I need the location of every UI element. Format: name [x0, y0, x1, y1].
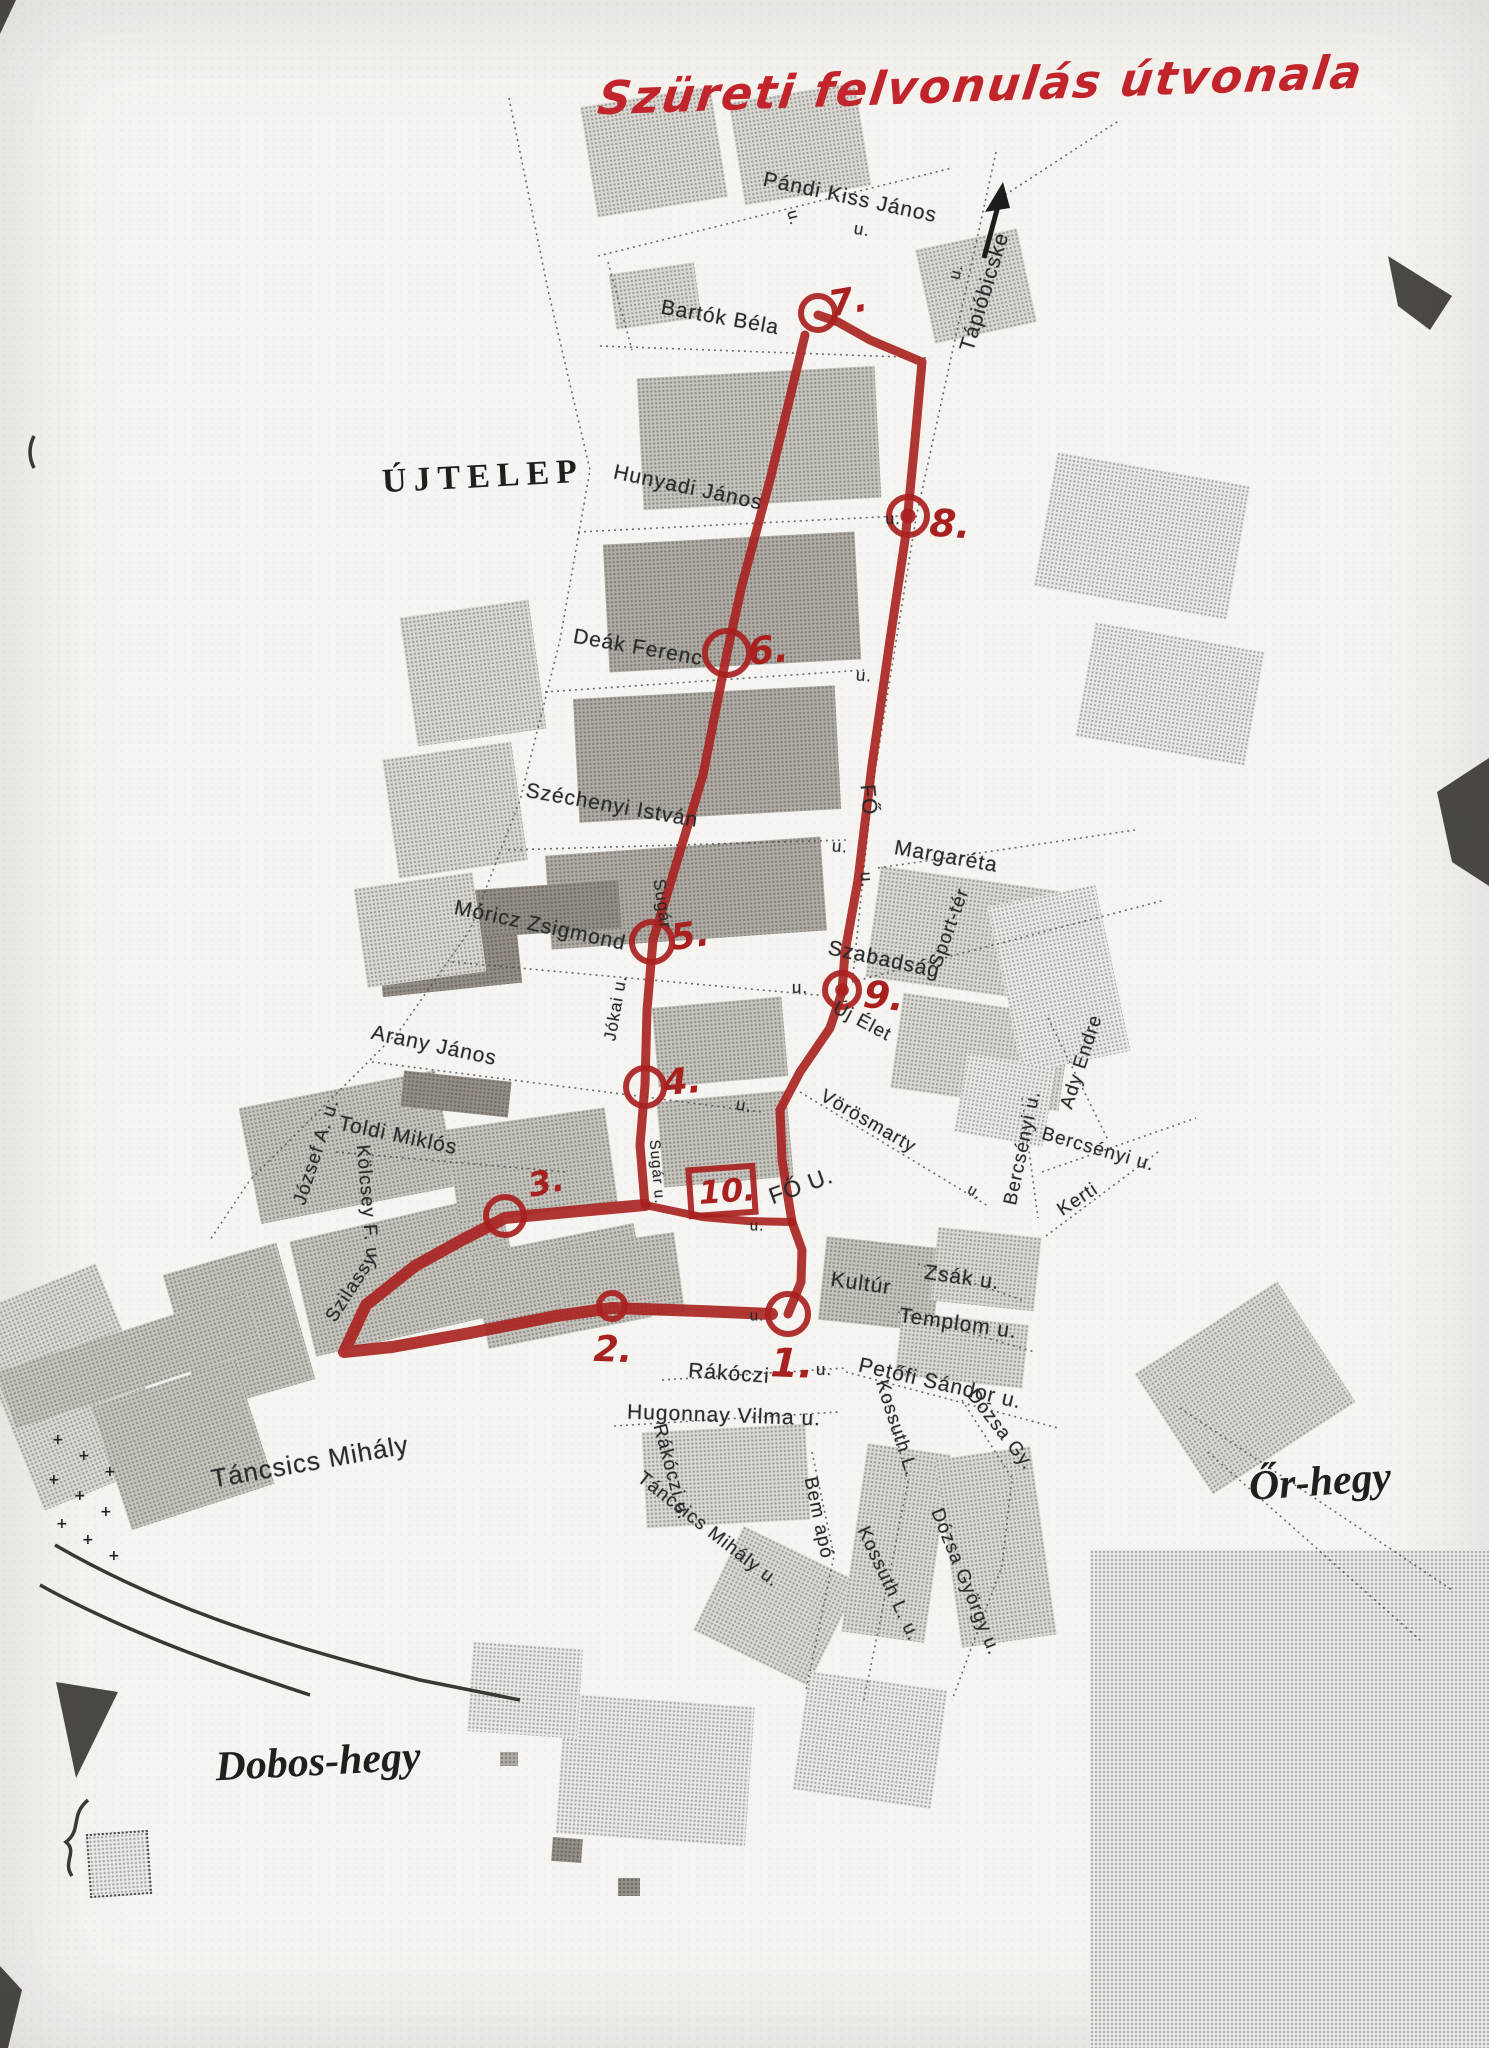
- route-segment: [780, 315, 922, 1222]
- scan-dark-mark: [1388, 256, 1452, 330]
- scan-dark-stroke: [30, 436, 34, 468]
- street-label-u: u.: [855, 871, 876, 889]
- street-label-u: u.: [885, 511, 900, 529]
- dotted-road: [578, 516, 898, 532]
- dotted-road: [210, 98, 590, 1240]
- route-segment: [344, 1205, 772, 1352]
- map-canvas: Pándi Kiss Jánosu.u.Tápióbicskeu.Bartók …: [0, 0, 1489, 2048]
- station-number-4: 4.: [661, 1060, 703, 1104]
- region-label-őr-hegy: Őr-hegy: [1247, 1453, 1392, 1511]
- cross-mark: +: [78, 1448, 90, 1464]
- cross-mark: +: [82, 1532, 94, 1548]
- dotted-road: [545, 670, 864, 692]
- scan-dark-mark: [56, 1682, 118, 1778]
- scan-dark-stroke: [66, 1800, 88, 1876]
- street-label-u: u.: [750, 1308, 765, 1325]
- street-label-fő: FŐ: [855, 783, 882, 816]
- street-label-u: u.: [734, 1095, 753, 1118]
- street-label-u: u.: [855, 665, 873, 686]
- scan-dark-mark: [0, 0, 16, 34]
- cross-mark: +: [104, 1464, 116, 1480]
- cross-mark: +: [74, 1488, 86, 1504]
- station-number-7: 7.: [825, 278, 870, 325]
- street-label-u: u.: [750, 1218, 765, 1235]
- scanned-map-page: Pándi Kiss Jánosu.u.Tápióbicskeu.Bartók …: [0, 0, 1489, 2048]
- dotted-road: [452, 962, 828, 996]
- station-number-8: 8.: [928, 501, 972, 548]
- dotted-road: [1005, 120, 1120, 195]
- dark-shapes-layer: [0, 0, 1489, 2048]
- street-label-u: u.: [816, 1360, 832, 1380]
- scan-dark-mark: [1437, 758, 1489, 886]
- station-number-2: 2.: [593, 1329, 633, 1371]
- street-label-u: u.: [852, 219, 871, 242]
- cross-mark: +: [52, 1432, 64, 1448]
- street-label-u: u.: [792, 978, 808, 998]
- cross-mark: +: [48, 1472, 60, 1488]
- station-number-6: 6.: [746, 626, 791, 673]
- station-number-9: 9.: [861, 972, 906, 1020]
- cross-mark: +: [108, 1548, 120, 1564]
- scan-dark-mark: [0, 1966, 22, 2048]
- station-number-1: 1.: [770, 1340, 815, 1387]
- map-overlay-svg: [0, 0, 1489, 2048]
- dotted-road: [372, 1062, 762, 1112]
- cross-mark: +: [100, 1504, 112, 1520]
- cross-mark: +: [56, 1516, 68, 1532]
- scan-dark-stroke: [55, 1545, 520, 1700]
- station-number-5: 5.: [668, 913, 712, 959]
- route-marker-8-inner: [900, 508, 915, 523]
- dotted-road: [608, 262, 632, 350]
- station-number-10: 10.: [697, 1170, 756, 1212]
- street-label-u: u.: [831, 836, 849, 857]
- route-marker-9-inner: [835, 983, 849, 997]
